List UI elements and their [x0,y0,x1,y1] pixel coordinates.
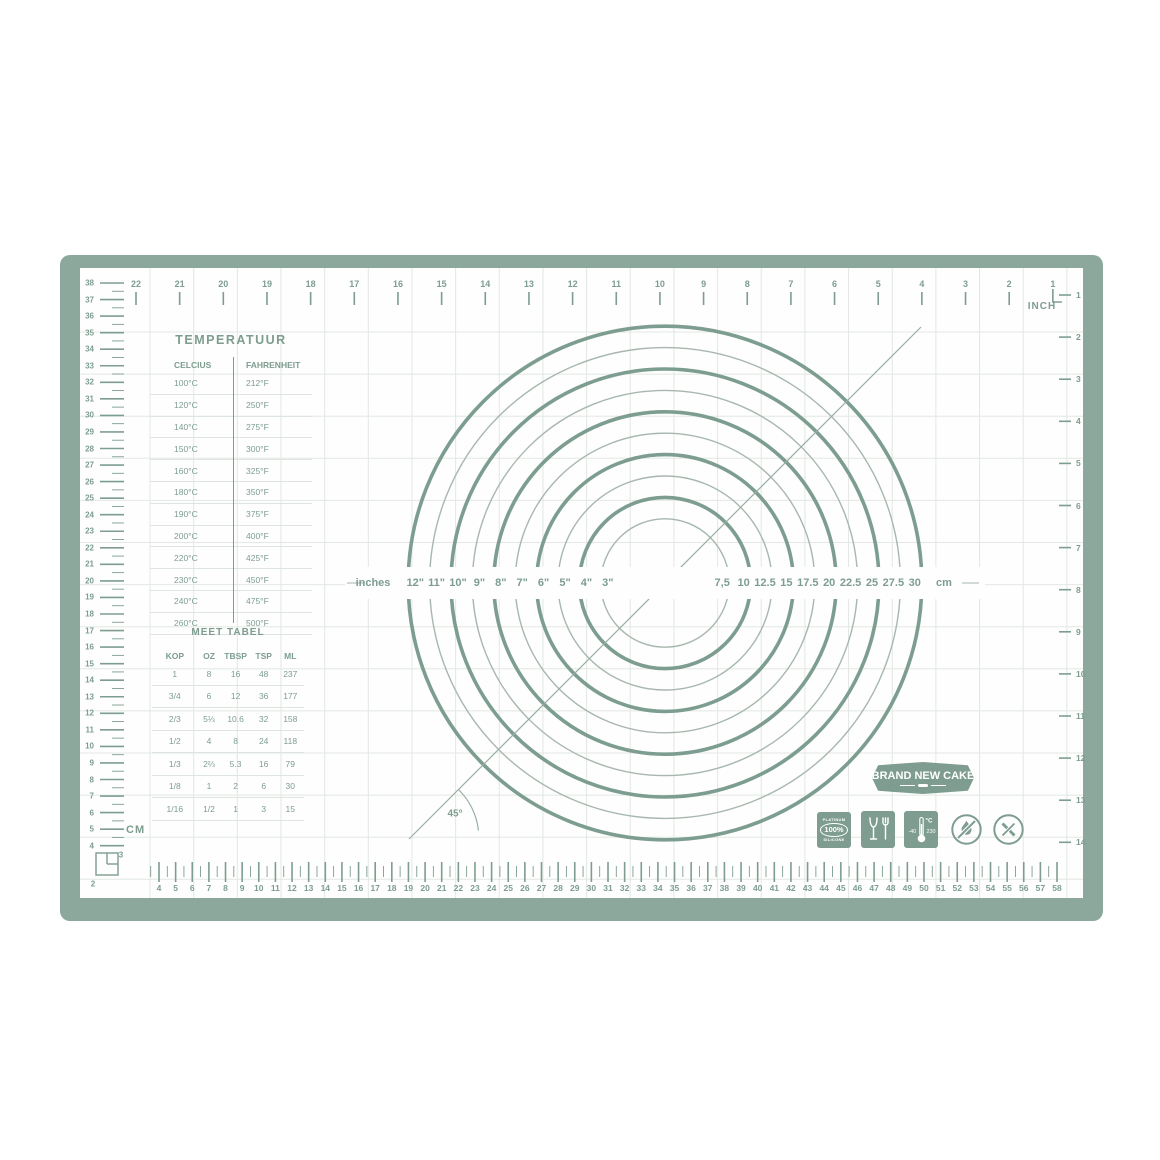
measure-value: 24 [251,736,277,746]
circle-cm-label: 10 [737,577,749,589]
celsius-value: 220°C [150,553,233,563]
circle-inch-label: 11" [428,577,445,589]
bottom-ruler-number: 21 [437,883,446,893]
bottom-ruler-number: 32 [620,883,629,893]
measure-value: 4 [198,736,221,746]
celsius-value: 200°C [150,531,233,541]
top-ruler-number: 8 [745,279,750,289]
circle-cm-label: 22.5 [840,577,861,589]
temperature-row: 220°C425°F [150,547,312,569]
measure-row: 1/32⅔5.31679 [152,753,304,776]
celsius-value: 120°C [150,400,233,410]
celsius-value: 100°C [150,378,233,388]
left-ruler-number: 10 [74,742,94,751]
temperature-table-rows: 100°C212°F120°C250°F140°C275°F150°C300°F… [150,373,312,635]
measure-value: 1 [152,669,198,679]
circle-inch-label: 6" [538,577,549,589]
top-ruler-number: 2 [1007,279,1012,289]
top-ruler-number: 5 [876,279,881,289]
bottom-ruler-number: 19 [404,883,413,893]
bottom-ruler-number: 29 [570,883,579,893]
top-ruler-number: 16 [393,279,403,289]
right-ruler-number: 4 [1076,416,1081,426]
platinum-silicone-badge-icon: PLATINUM 100% SILICONE [817,812,851,848]
bottom-ruler-number: 14 [321,883,330,893]
left-ruler-number: 32 [74,378,94,387]
temperature-row: 100°C212°F [150,373,312,395]
measure-value: 12 [220,691,250,701]
bottom-ruler-number: 28 [553,883,562,893]
circle-cm-label: 7,5 [715,577,730,589]
bottom-ruler-number: 52 [953,883,962,893]
fahrenheit-column-header: FAHRENHEIT [233,360,300,370]
measure-value: 5⅓ [198,714,221,724]
bottom-ruler-number: 40 [753,883,762,893]
left-ruler-number: 22 [74,543,94,552]
top-ruler-number: 21 [175,279,185,289]
ml-column-header: ML [277,651,304,661]
top-ruler-number: 11 [611,279,621,289]
circle-inch-label: 7" [517,577,528,589]
measure-value: 6 [251,781,277,791]
fahrenheit-value: 212°F [233,378,269,388]
bottom-ruler-number: 43 [803,883,812,893]
bottom-ruler-number: 44 [819,883,828,893]
top-ruler-number: 19 [262,279,272,289]
measure-value: 1 [198,781,221,791]
measure-row: 1/812630 [152,776,304,799]
bottom-ruler-number: 39 [736,883,745,893]
temperature-row: 240°C475°F [150,591,312,613]
top-ruler-number: 17 [349,279,359,289]
temperature-row: 190°C375°F [150,504,312,526]
bottom-ruler-number: 53 [969,883,978,893]
temperature-row: 150°C300°F [150,438,312,460]
left-ruler-number: 26 [74,477,94,486]
measure-row: 1/24824118 [152,731,304,754]
left-ruler-number: 12 [74,709,94,718]
bottom-ruler-number: 48 [886,883,895,893]
bottom-ruler-number: 58 [1052,883,1061,893]
temp-unit-label: °C [926,818,933,825]
measure-value: 16 [251,759,277,769]
circle-inch-label: 8" [495,577,506,589]
celsius-value: 190°C [150,509,233,519]
left-ruler-number: 17 [74,626,94,635]
circle-cm-label: 17.5 [797,577,818,589]
left-ruler-number: 36 [74,312,94,321]
measure-row: 2/35⅓10.632158 [152,708,304,731]
right-ruler-number: 2 [1076,332,1081,342]
measure-value: 1/2 [152,736,198,746]
left-ruler-number: 24 [74,510,94,519]
circle-cm-label: 15 [780,577,792,589]
measure-value: 6 [198,691,221,701]
measure-value: 1 [220,804,250,814]
cm-unit-label: CM [126,824,145,836]
left-ruler-number: 20 [74,576,94,585]
no-sharp-objects-icon [992,813,1025,846]
measure-value: 177 [277,691,304,701]
bottom-ruler-number: 24 [487,883,496,893]
circle-inch-label: 9" [474,577,485,589]
bottom-ruler-number: 27 [537,883,546,893]
circle-inch-label: 10" [449,577,466,589]
bottom-ruler-number: 13 [304,883,313,893]
left-ruler-number: 6 [74,808,94,817]
bottom-ruler-number: 57 [1036,883,1045,893]
bottom-ruler-number: 34 [653,883,662,893]
top-ruler-number: 20 [218,279,228,289]
measure-value: 3 [251,804,277,814]
measure-value: 158 [277,714,304,724]
left-ruler-number: 5 [74,825,94,834]
measure-value: 1/2 [198,804,221,814]
fahrenheit-value: 325°F [233,466,269,476]
left-ruler-number: 33 [74,361,94,370]
corner-number-2: 2 [91,880,95,889]
measure-value: 1/3 [152,759,198,769]
bottom-ruler-number: 33 [637,883,646,893]
badge-percent-text: 100% [820,823,847,837]
circle-cm-label: 20 [823,577,835,589]
fahrenheit-value: 400°F [233,531,269,541]
brand-logo: BRAND NEW CAKE [872,762,974,794]
bottom-ruler-number: 41 [770,883,779,893]
temperature-table-header: CELCIUS FAHRENHEIT [150,357,312,373]
temperature-row: 120°C250°F [150,395,312,417]
bottom-ruler-number: 16 [354,883,363,893]
brand-logo-text: BRAND NEW CAKE [872,770,975,782]
left-ruler-number: 23 [74,527,94,536]
fahrenheit-value: 375°F [233,509,269,519]
top-ruler-number: 18 [306,279,316,289]
bottom-ruler-number: 51 [936,883,945,893]
top-ruler-number: 10 [655,279,665,289]
measure-value: 48 [251,669,277,679]
measure-row: 3/461236177 [152,686,304,709]
measure-value: 2 [220,781,250,791]
measure-value: 32 [251,714,277,724]
bottom-ruler-number: 49 [903,883,912,893]
circles-inches-caption: inches [356,577,391,589]
right-ruler-number: 10 [1076,669,1085,679]
bottom-ruler-number: 4 [157,883,162,893]
fahrenheit-value: 450°F [233,575,269,585]
bottom-ruler-number: 35 [670,883,679,893]
measure-value: 30 [277,781,304,791]
circle-inch-label: 12" [406,577,423,589]
left-ruler-number: 8 [74,775,94,784]
circle-cm-label: 27.5 [883,577,904,589]
bottom-ruler-number: 9 [240,883,245,893]
temperature-row: 200°C400°F [150,526,312,548]
bottom-ruler-number: 23 [470,883,479,893]
badge-top-text: PLATINUM [823,818,846,822]
bottom-ruler-number: 38 [720,883,729,893]
right-ruler-number: 1 [1076,290,1081,300]
measure-value: 79 [277,759,304,769]
circle-cm-label: 25 [866,577,878,589]
bottom-ruler-number: 8 [223,883,228,893]
right-ruler-number: 14 [1076,837,1085,847]
measure-table-rows: 1816482373/4612361772/35⅓10.6321581/2482… [152,663,304,821]
corner-number-3: 3 [119,851,123,860]
bottom-ruler-number: 31 [603,883,612,893]
left-ruler-number: 4 [74,841,94,850]
fahrenheit-value: 250°F [233,400,269,410]
whisk-ornament-icon [900,784,946,787]
measure-value: 5.3 [220,759,250,769]
inch-unit-label: INCH [1024,301,1060,312]
left-ruler-number: 38 [74,279,94,288]
bottom-ruler-number: 37 [703,883,712,893]
temperature-row: 180°C350°F [150,482,312,504]
bottom-ruler-number: 46 [853,883,862,893]
bottom-ruler-number: 47 [869,883,878,893]
bottom-ruler-number: 26 [520,883,529,893]
celsius-value: 150°C [150,444,233,454]
fahrenheit-value: 425°F [233,553,269,563]
temp-min-label: -40 [909,829,917,835]
circle-inch-label: 4" [581,577,592,589]
bottom-ruler-number: 15 [337,883,346,893]
measure-value: 237 [277,669,304,679]
top-ruler-number: 3 [963,279,968,289]
celsius-value: 140°C [150,422,233,432]
left-ruler-number: 28 [74,444,94,453]
bottom-ruler-number: 11 [271,883,280,893]
right-ruler-number: 6 [1076,501,1081,511]
left-ruler-number: 35 [74,328,94,337]
measure-table-title: MEET TABEL [152,626,304,640]
angle-45-label: 45° [447,809,462,820]
bottom-ruler-number: 30 [587,883,596,893]
temperature-table-title: TEMPERATUUR [150,332,312,348]
fahrenheit-value: 300°F [233,444,269,454]
right-ruler-number: 9 [1076,627,1081,637]
measure-value: 8 [198,669,221,679]
measure-value: 8 [220,736,250,746]
circles-cm-caption: cm [936,577,952,589]
right-ruler-number: 7 [1076,543,1081,553]
top-ruler-number: 7 [788,279,793,289]
top-ruler-number: 1 [1050,279,1055,289]
bottom-ruler-number: 45 [836,883,845,893]
tsp-column-header: TSP [251,651,277,661]
left-ruler-number: 13 [74,692,94,701]
circle-cm-label: 12.5 [754,577,775,589]
food-safe-icon [861,811,895,848]
left-ruler-number: 37 [74,295,94,304]
celsius-value: 160°C [150,466,233,476]
fahrenheit-value: 275°F [233,422,269,432]
bottom-ruler-number: 50 [919,883,928,893]
bottom-ruler-number: 17 [370,883,379,893]
measure-value: 10.6 [220,714,250,724]
temperature-row: 140°C275°F [150,417,312,439]
right-ruler-number: 3 [1076,374,1081,384]
left-ruler-number: 7 [74,792,94,801]
measure-value: 36 [251,691,277,701]
left-ruler-number: 18 [74,610,94,619]
top-ruler-number: 13 [524,279,534,289]
top-ruler-number: 15 [437,279,447,289]
bottom-ruler-number: 36 [686,883,695,893]
bottom-ruler-number: 22 [454,883,463,893]
left-ruler-number: 34 [74,345,94,354]
bottom-ruler-number: 25 [503,883,512,893]
circle-cm-label: 30 [909,577,921,589]
right-ruler-number: 5 [1076,458,1081,468]
temperature-table: TEMPERATUUR CELCIUS FAHRENHEIT 100°C212°… [150,332,312,635]
top-ruler-number: 4 [919,279,924,289]
right-ruler-number: 12 [1076,753,1085,763]
right-ruler-number: 8 [1076,585,1081,595]
tbsp-column-header: TBSP [220,651,250,661]
circle-inch-label: 5" [559,577,570,589]
bottom-ruler-number: 55 [1002,883,1011,893]
bottom-ruler-number: 6 [190,883,195,893]
temperature-range-icon: °C -40 230 [904,811,938,848]
left-ruler-number: 16 [74,643,94,652]
left-ruler-number: 21 [74,560,94,569]
baking-mat-product-image: 2221201918171615141312111098765432112345… [0,0,1160,1160]
measure-table: MEET TABEL KOP OZ TBSP TSP ML 1816482373… [152,626,304,821]
left-ruler-number: 14 [74,676,94,685]
measure-value: 2/3 [152,714,198,724]
bottom-ruler-number: 7 [207,883,212,893]
left-ruler-number: 29 [74,427,94,436]
measure-value: 15 [277,804,304,814]
measure-value: 1/8 [152,781,198,791]
bottom-ruler-number: 12 [287,883,296,893]
bottom-ruler-number: 56 [1019,883,1028,893]
fahrenheit-value: 475°F [233,596,269,606]
celsius-value: 180°C [150,487,233,497]
measure-value: 16 [220,669,250,679]
temperature-row: 160°C325°F [150,460,312,482]
left-ruler-number: 11 [74,725,94,734]
temp-max-label: 230 [927,829,936,835]
left-ruler-number: 25 [74,494,94,503]
left-ruler-number: 9 [74,758,94,767]
temperature-table-divider [233,357,234,623]
top-ruler-number: 9 [701,279,706,289]
celsius-value: 230°C [150,575,233,585]
measure-table-header: KOP OZ TBSP TSP ML [152,648,304,663]
top-ruler-number: 12 [568,279,578,289]
measure-value: 2⅔ [198,759,221,769]
left-ruler-number: 30 [74,411,94,420]
bottom-ruler-number: 20 [420,883,429,893]
left-ruler-number: 27 [74,461,94,470]
left-ruler-number: 19 [74,593,94,602]
oz-column-header: OZ [198,651,221,661]
measure-row: 181648237 [152,663,304,686]
bottom-ruler-number: 42 [786,883,795,893]
right-ruler-number: 11 [1076,711,1085,721]
bottom-ruler-number: 18 [387,883,396,893]
measure-value: 118 [277,736,304,746]
celsius-value: 240°C [150,596,233,606]
fahrenheit-value: 350°F [233,487,269,497]
top-ruler-number: 6 [832,279,837,289]
bottom-ruler-number: 10 [254,883,263,893]
badge-bottom-text: SILICONE [823,838,844,842]
bottom-ruler-number: 54 [986,883,995,893]
no-open-flame-icon [950,813,983,846]
top-ruler-number: 22 [131,279,141,289]
measure-value: 3/4 [152,691,198,701]
left-ruler-number: 15 [74,659,94,668]
circle-inch-label: 3" [602,577,613,589]
right-ruler-number: 13 [1076,795,1085,805]
top-ruler-number: 14 [480,279,490,289]
bottom-ruler-number: 5 [173,883,178,893]
measure-row: 1/161/21315 [152,798,304,821]
temperature-row: 230°C450°F [150,569,312,591]
measure-value: 1/16 [152,804,198,814]
celsius-column-header: CELCIUS [150,360,233,370]
kop-column-header: KOP [152,651,198,661]
left-ruler-number: 31 [74,394,94,403]
